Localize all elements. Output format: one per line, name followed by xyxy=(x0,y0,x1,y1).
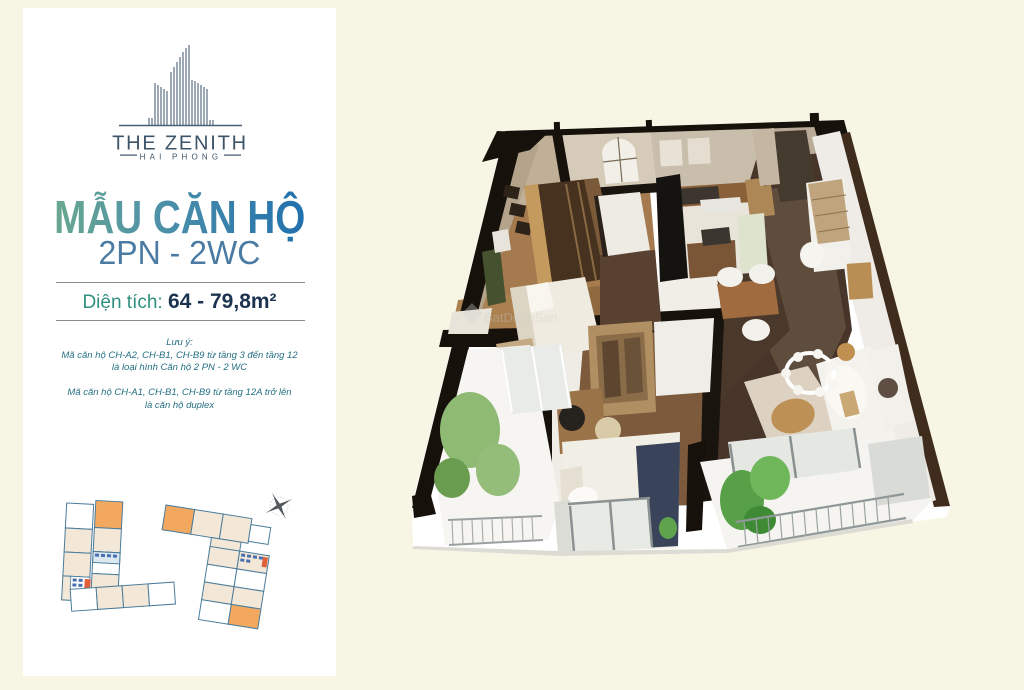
svg-text:BatDongSan: BatDongSan xyxy=(484,310,558,325)
